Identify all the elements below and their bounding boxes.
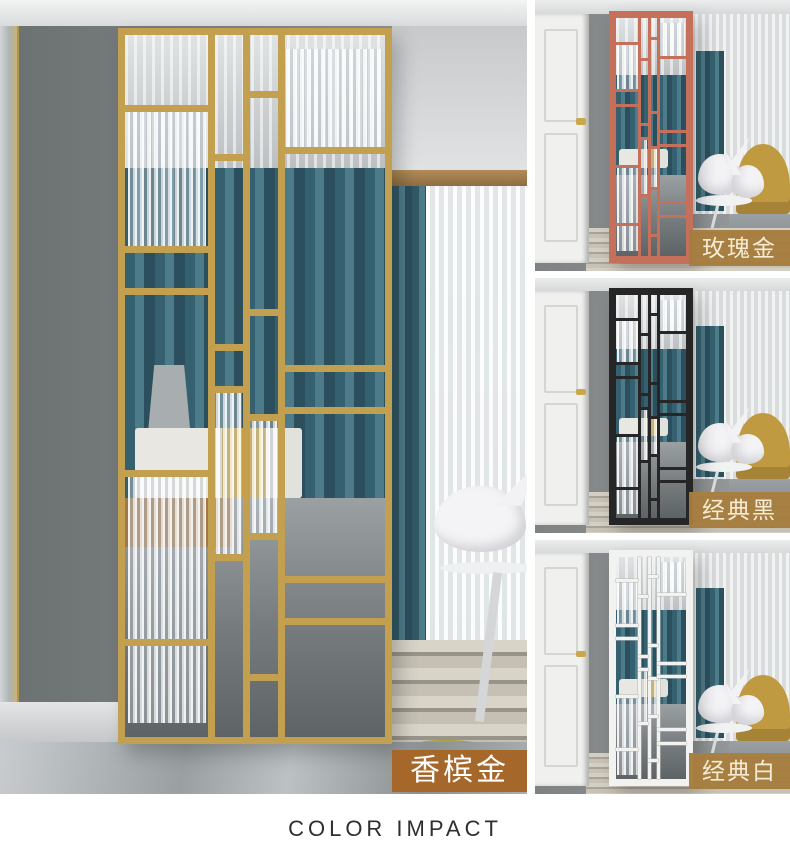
lattice-bar [616,223,638,226]
variant-photo-classic-black: 经典黑 [535,278,790,533]
door [535,14,589,263]
lattice-bar [648,498,658,501]
fluted-glass-cell [617,165,638,222]
lattice-bar [657,56,686,59]
lattice-bar [648,575,658,578]
lattice-bar [657,144,686,147]
lattice-bar [657,331,686,334]
divider-screen-classic-white [609,550,693,786]
fluted-glass-cell [617,434,638,488]
lattice-bar [278,365,385,372]
lattice-bar [125,105,208,112]
lattice-bar [657,728,686,731]
lattice-bar [638,407,648,410]
lattice-bar [243,674,279,681]
fluted-glass-cell [617,695,638,748]
color-label-champagne-gold: 香槟金 [392,750,527,792]
divider-screen-champagne [118,28,392,744]
lattice-bar [616,434,638,437]
lattice-bar [638,194,648,197]
lattice-bar [657,662,686,665]
lattice-bar [657,675,686,678]
lattice-bar [657,413,686,416]
lattice-bar [208,386,244,393]
variant-photo-rose-gold: 玫瑰金 [535,0,790,271]
fluted-glass-cell [128,639,206,723]
lattice-bar [278,35,285,737]
lattice-bar [278,576,385,583]
fluted-glass-cell [128,105,206,245]
lattice-bar [638,668,648,671]
color-label-classic-white: 经典白 [689,753,790,789]
lattice-bar [638,655,648,658]
lattice-bar [648,382,658,385]
lattice-bar [638,460,648,463]
lattice-bar [657,557,660,779]
divider-screen-rose-gold [609,11,693,263]
wood-valance [392,170,527,186]
lattice-bar [208,344,244,351]
screen-lattice [616,295,686,518]
side-table [440,562,527,574]
lattice-bar [638,123,648,126]
lattice-bar [648,146,658,149]
door-handle-icon [576,651,586,657]
lattice-bar [648,234,658,237]
lattice-bar [125,288,208,295]
fluted-glass-cell [658,562,685,593]
lattice-bar [278,618,385,625]
main-photo-champagne-gold: 香槟金 [0,0,527,794]
lattice-bar [648,295,651,518]
lattice-bar [648,677,658,680]
fluted-glass-cell [617,487,638,514]
product-color-collage: 香槟金 玫瑰金 [0,0,790,863]
fluted-glass-cell [211,386,242,554]
lattice-bar [243,533,279,540]
lattice-bar [648,37,658,40]
lattice-bar [278,147,385,154]
fluted-glass-cell [658,300,685,331]
lattice-bar [638,393,648,396]
screen-lattice [616,18,686,256]
lattice-bar [616,165,638,168]
lattice-bar [648,759,658,762]
lattice-bar [638,333,648,336]
lattice-bar [616,42,638,45]
variant-photo-classic-white: 经典白 [535,540,790,794]
lattice-bar [648,715,658,718]
lattice-bar [638,137,648,140]
lattice-bar [616,318,638,321]
fluted-glass-cell [617,579,638,623]
color-label-classic-black: 经典黑 [689,492,790,528]
fluted-glass-cell [247,414,278,533]
collage-caption: COLOR IMPACT [0,794,790,863]
lattice-bar [616,487,638,490]
lattice-bar [616,637,638,640]
fluted-glass-cell [658,23,685,56]
door-handle-icon [576,118,586,124]
fluted-glass-cell [128,470,206,638]
lattice-bar [648,644,658,647]
lattice-bar [648,18,651,256]
lattice-bar [657,400,686,403]
teal-curtain [392,186,428,642]
lattice-bar [648,557,651,779]
lattice-bar [208,554,244,561]
door-handle-icon [576,389,586,395]
lattice-bar [657,130,686,133]
lattice-bar [638,595,648,598]
lattice-bar [125,470,208,477]
upper-wall [392,26,527,172]
lattice-bar [616,748,638,751]
screen-lattice [616,557,686,779]
lattice-bar [125,639,208,646]
lattice-bar [616,104,638,107]
floor-steps [392,640,527,744]
ceiling [0,0,527,26]
lattice-bar [648,111,658,114]
lattice-bar [243,309,279,316]
mirror-strip [0,26,19,740]
lattice-bar [125,246,208,253]
fluted-glass-cell [617,748,638,775]
lattice-bar [648,416,658,419]
lattice-bar [648,187,658,190]
lattice-bar [616,362,638,365]
fluted-glass-cell [281,49,382,147]
lattice-bar [657,18,660,256]
bird-sculpture [434,486,526,552]
lattice-bar [616,624,638,627]
lattice-bar [657,295,660,518]
lattice-bar [638,58,648,61]
color-label-rose-gold: 玫瑰金 [689,230,790,266]
lattice-bar [638,722,648,725]
fluted-glass-cell [617,223,638,252]
lattice-bar [657,742,686,745]
lattice-bar [657,593,686,596]
bird-sculpture [731,695,764,725]
lattice-bar [616,89,638,92]
lattice-bar [616,695,638,698]
lattice-bar [616,376,638,379]
lattice-bar [243,91,279,98]
lattice-bar [278,407,385,414]
lattice-bar [616,579,638,582]
lattice-bar [208,154,244,161]
screen-lattice [125,35,385,737]
lattice-bar [657,480,686,483]
door [535,291,589,526]
lattice-bar [657,467,686,470]
lattice-bar [657,201,686,204]
fluted-glass-cell [617,318,638,363]
lattice-bar [243,414,279,421]
fluted-glass-cell [617,42,638,90]
lattice-bar [657,215,686,218]
divider-screen-classic-black [609,288,693,525]
lattice-bar [648,454,658,457]
lattice-bar [648,313,658,316]
baseboard [0,702,120,742]
door [535,553,589,787]
